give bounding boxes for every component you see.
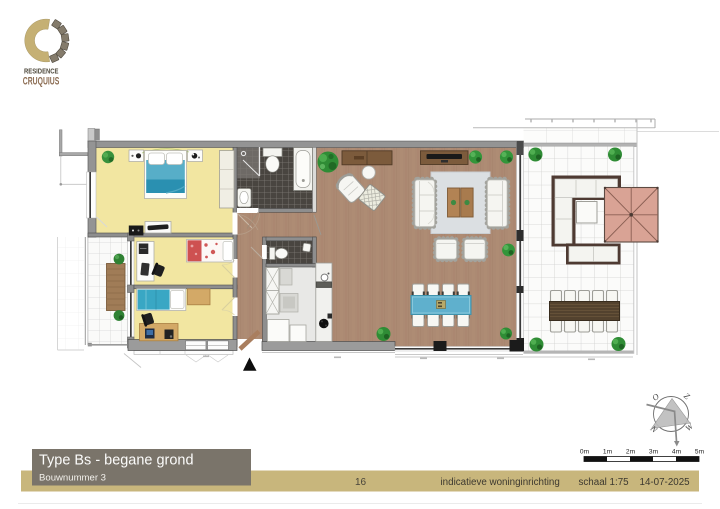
svg-text:schaal 1:75: schaal 1:75 — [579, 477, 630, 488]
svg-text:indicatieve woninginrichting: indicatieve woninginrichting — [441, 477, 560, 488]
svg-text:2m: 2m — [626, 449, 636, 456]
svg-text:0m: 0m — [580, 449, 590, 456]
svg-text:5m: 5m — [695, 449, 705, 456]
svg-text:4m: 4m — [672, 449, 682, 456]
svg-text:16: 16 — [355, 477, 367, 488]
svg-text:Bouwnummer 3: Bouwnummer 3 — [39, 473, 106, 484]
svg-text:CRUQUIUS: CRUQUIUS — [23, 76, 60, 88]
svg-text:RESIDENCE: RESIDENCE — [24, 67, 59, 76]
svg-text:Type Bs - begane grond: Type Bs - begane grond — [39, 452, 194, 469]
svg-text:14-07-2025: 14-07-2025 — [640, 477, 691, 488]
svg-text:3m: 3m — [649, 449, 659, 456]
svg-text:1m: 1m — [603, 449, 613, 456]
